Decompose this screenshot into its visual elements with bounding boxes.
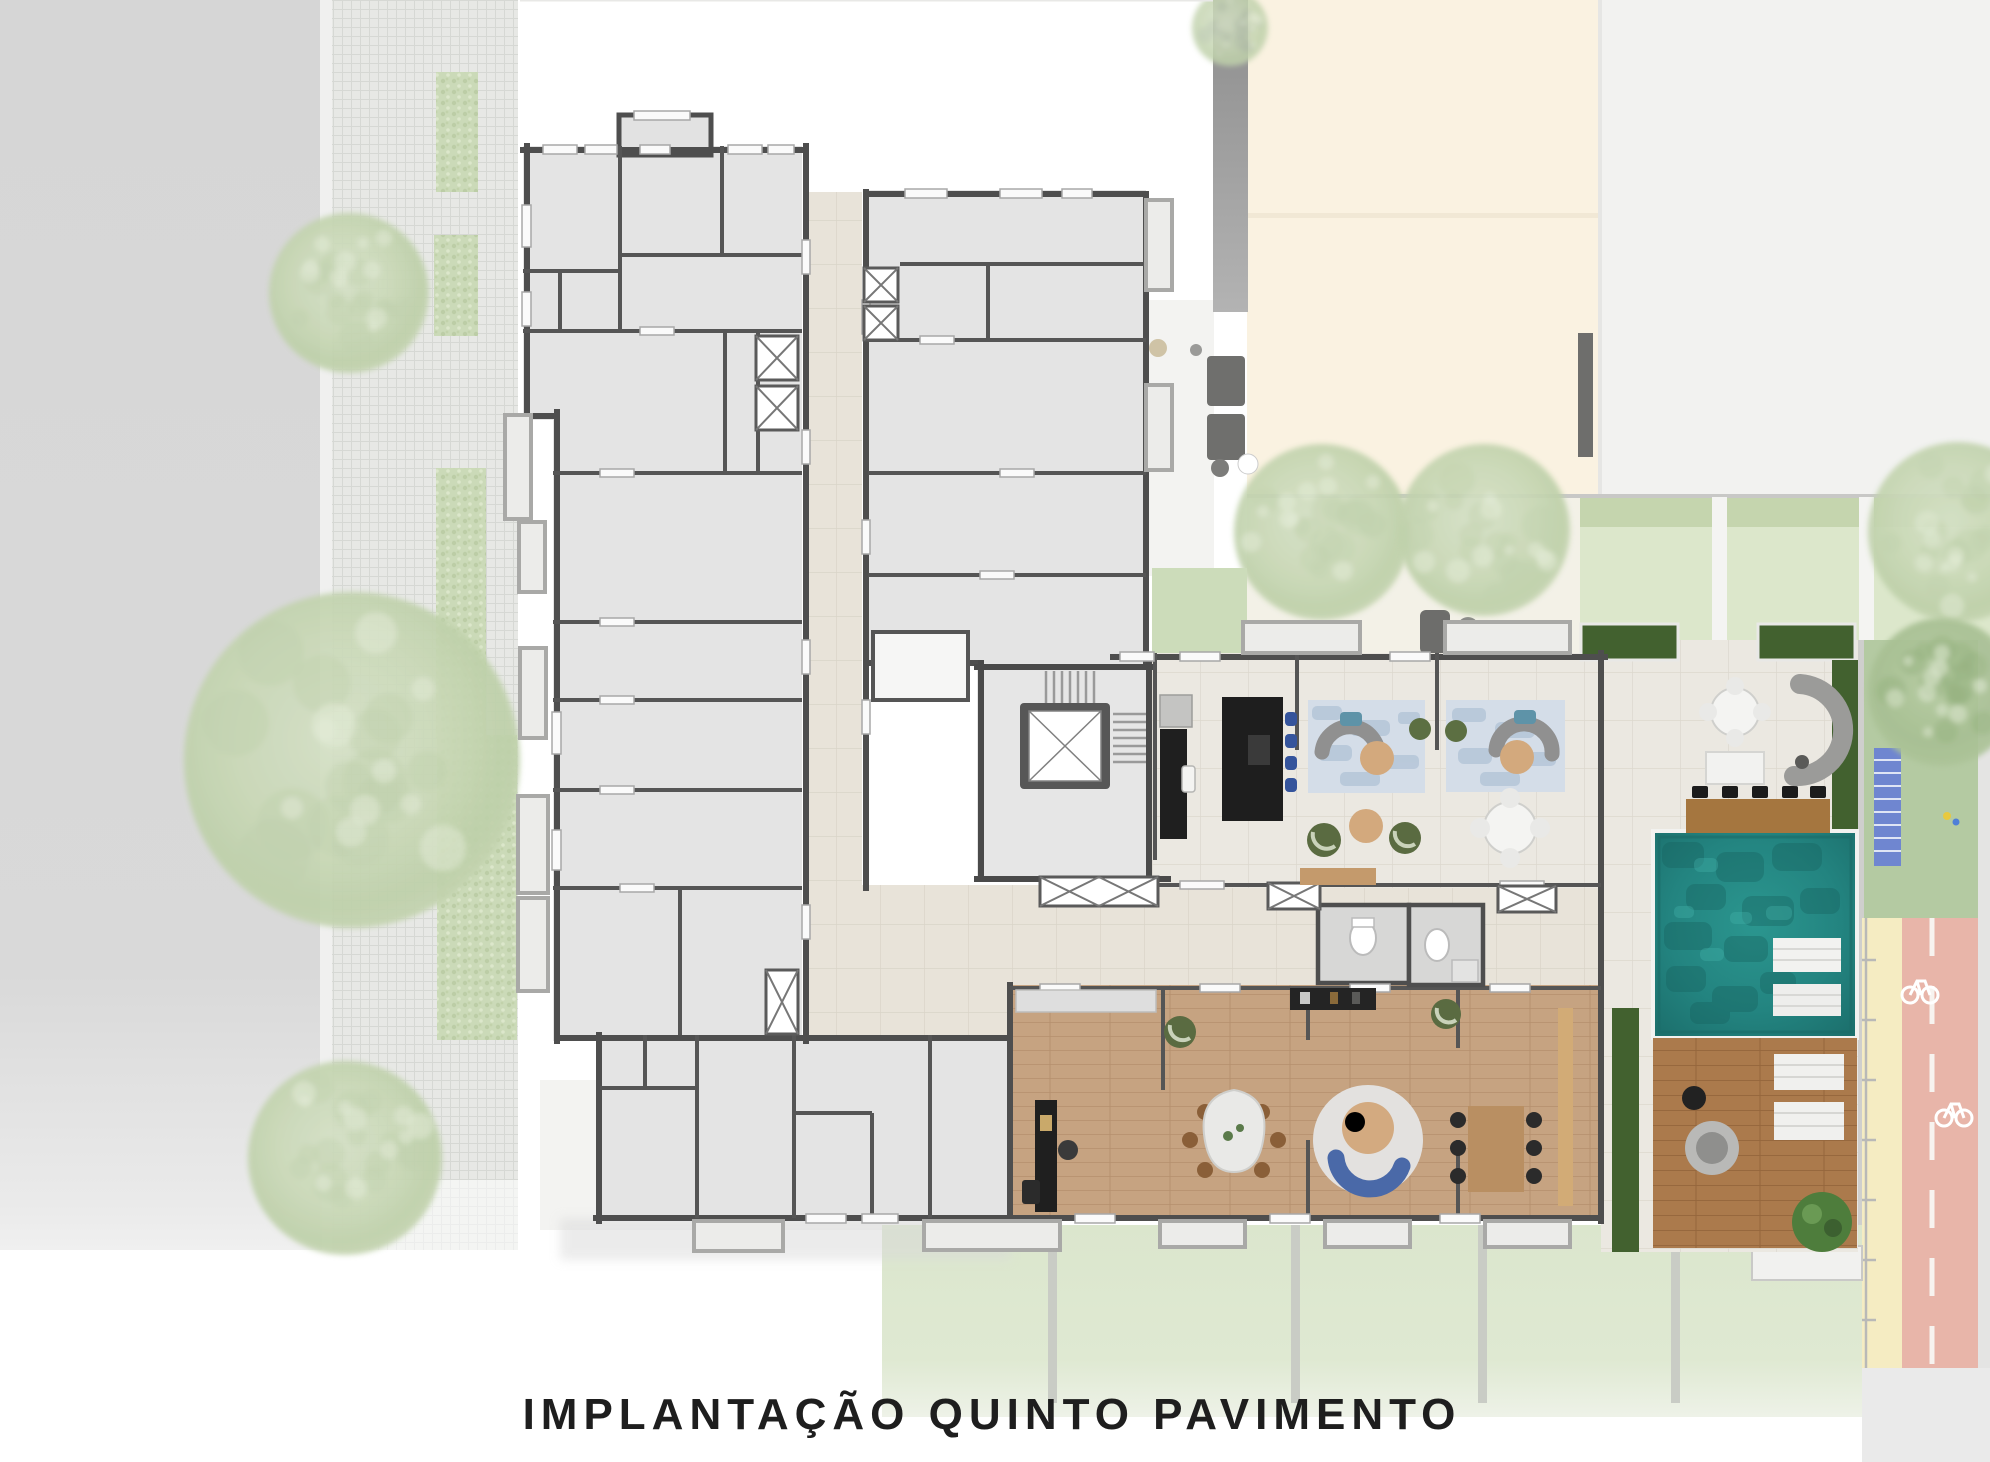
svg-text:IMPLANTAÇÃO QUINTO PAVIMENTO: IMPLANTAÇÃO QUINTO PAVIMENTO [523,1389,1462,1439]
